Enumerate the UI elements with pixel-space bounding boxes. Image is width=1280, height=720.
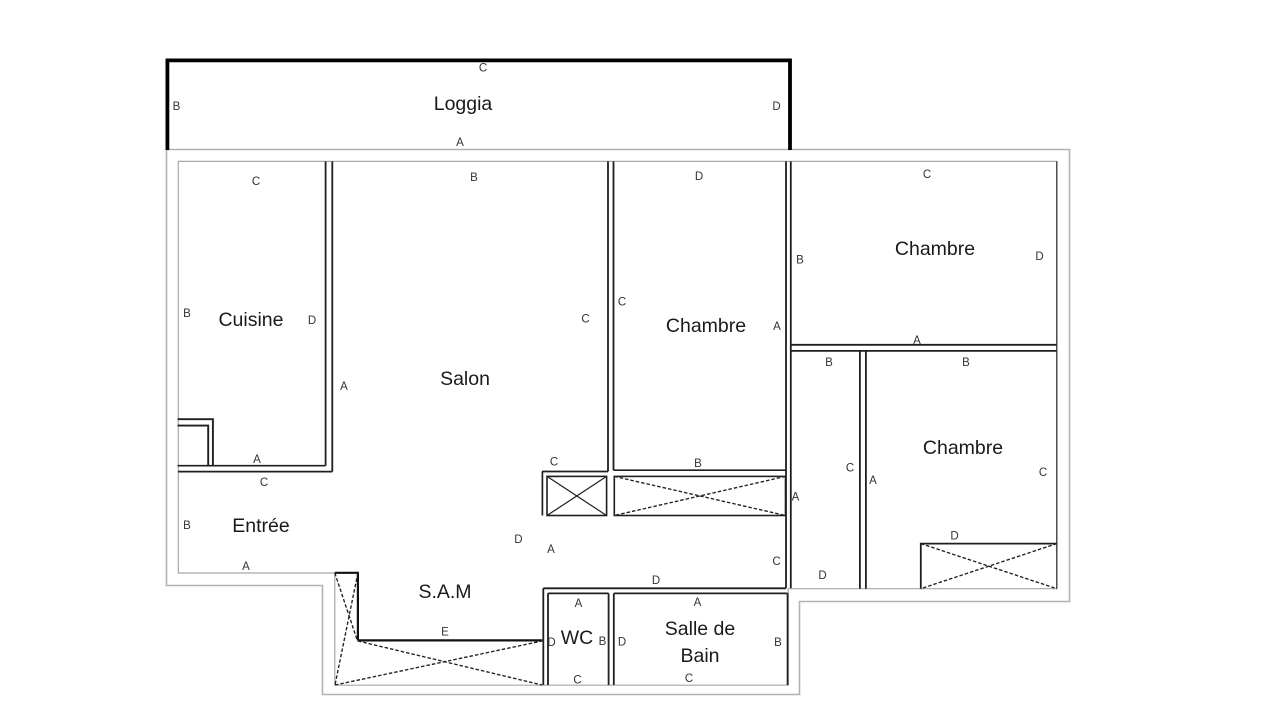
svg-text:A: A	[253, 454, 261, 466]
svg-text:B: B	[173, 101, 181, 113]
svg-text:Chambre: Chambre	[923, 437, 1003, 459]
svg-text:D: D	[772, 101, 780, 113]
svg-text:A: A	[456, 137, 464, 149]
svg-text:C: C	[772, 556, 780, 568]
svg-text:B: B	[796, 255, 804, 267]
svg-text:C: C	[581, 313, 589, 325]
svg-text:C: C	[252, 176, 260, 188]
svg-text:C: C	[685, 673, 693, 685]
svg-text:D: D	[652, 575, 660, 587]
svg-text:B: B	[599, 636, 607, 648]
svg-text:C: C	[573, 674, 581, 686]
svg-text:Salon: Salon	[440, 368, 490, 390]
svg-text:C: C	[550, 456, 558, 468]
svg-text:Bain: Bain	[680, 645, 719, 667]
svg-text:D: D	[1035, 251, 1043, 263]
svg-text:Chambre: Chambre	[666, 315, 746, 337]
svg-text:B: B	[694, 458, 702, 470]
svg-text:B: B	[962, 357, 970, 369]
svg-text:D: D	[547, 637, 555, 649]
svg-text:A: A	[340, 381, 348, 393]
svg-text:Loggia: Loggia	[434, 93, 493, 115]
svg-text:C: C	[260, 477, 268, 489]
svg-text:C: C	[479, 62, 487, 74]
svg-text:A: A	[869, 475, 877, 487]
svg-text:S.A.M: S.A.M	[418, 581, 471, 603]
svg-text:A: A	[547, 544, 555, 556]
svg-text:B: B	[470, 172, 478, 184]
svg-text:A: A	[694, 597, 702, 609]
svg-text:Cuisine: Cuisine	[218, 309, 283, 331]
svg-text:D: D	[950, 531, 958, 543]
svg-text:Chambre: Chambre	[895, 238, 975, 260]
svg-text:A: A	[242, 561, 250, 573]
svg-text:C: C	[1039, 467, 1047, 479]
svg-text:B: B	[825, 357, 833, 369]
svg-text:C: C	[923, 169, 931, 181]
svg-text:Entrée: Entrée	[232, 515, 289, 537]
svg-text:E: E	[441, 626, 449, 638]
svg-text:B: B	[183, 308, 191, 320]
svg-text:A: A	[575, 598, 583, 610]
svg-text:B: B	[774, 637, 782, 649]
svg-text:Salle de: Salle de	[665, 618, 735, 640]
svg-text:A: A	[913, 335, 921, 347]
svg-text:A: A	[792, 492, 800, 504]
svg-text:D: D	[514, 534, 522, 546]
svg-text:D: D	[308, 315, 316, 327]
svg-text:WC: WC	[561, 627, 594, 649]
svg-text:B: B	[183, 520, 191, 532]
svg-text:C: C	[846, 463, 854, 475]
svg-text:D: D	[695, 171, 703, 183]
svg-text:D: D	[618, 636, 626, 648]
svg-text:C: C	[618, 296, 626, 308]
svg-text:D: D	[818, 570, 826, 582]
svg-text:A: A	[773, 321, 781, 333]
